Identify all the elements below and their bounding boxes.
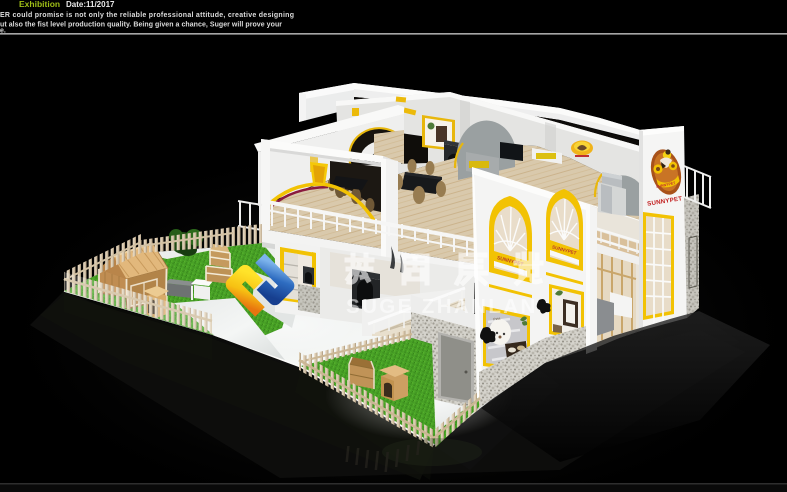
svg-text:Exhibition: Exhibition: [19, 0, 60, 9]
svg-text:ER could promise is not only t: ER could promise is not only the reliabl…: [0, 12, 294, 19]
svg-text:SUGE ZHANLAN: SUGE ZHANLAN: [346, 295, 538, 318]
svg-text:Date:11/2017: Date:11/2017: [66, 0, 115, 9]
svg-text:ut also the fist level product: ut also the fist level production qualit…: [0, 22, 282, 29]
